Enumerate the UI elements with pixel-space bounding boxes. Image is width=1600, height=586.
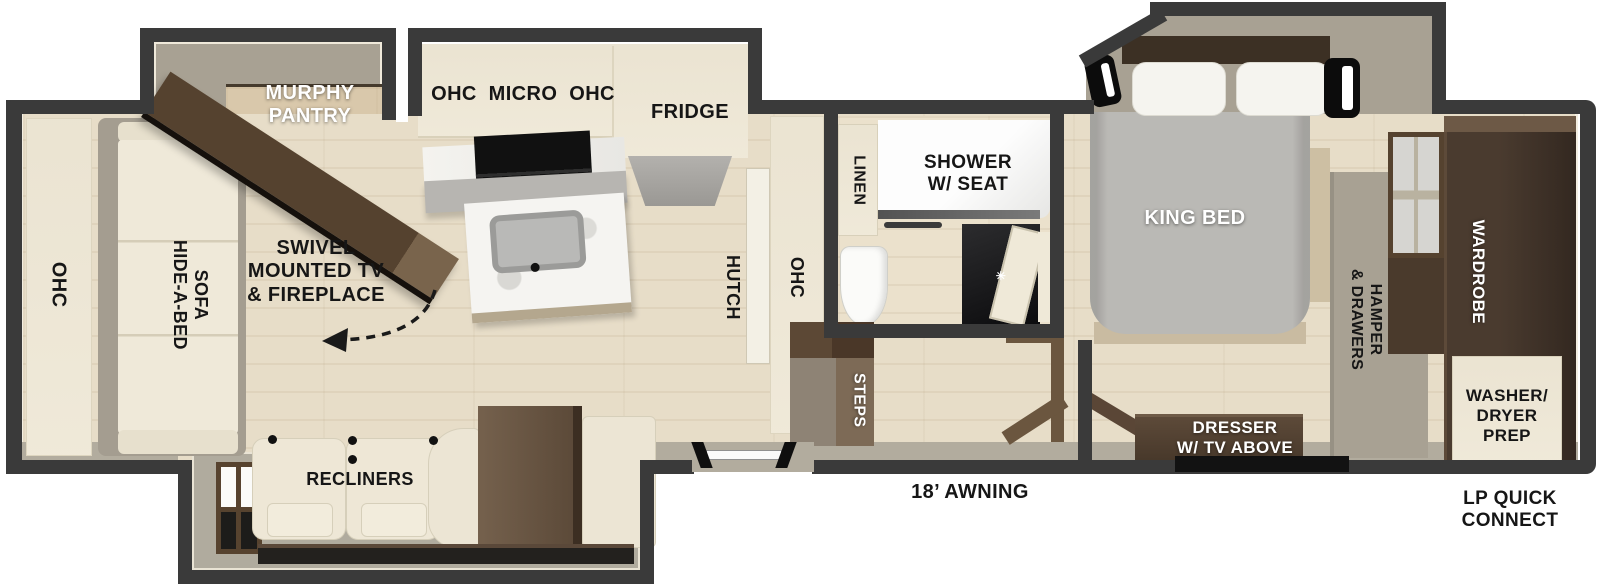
- toilet: [840, 246, 888, 326]
- wall-left-end: [6, 100, 22, 474]
- label-murphy-pantry: MURPHYPANTRY: [230, 82, 390, 128]
- wall-right-end: [1580, 100, 1596, 474]
- slide-floor-mat: [258, 544, 634, 564]
- wardrobe-top-shelf: [1444, 116, 1576, 132]
- bedroom-window-right: [1324, 58, 1360, 118]
- label-recliners: RECLINERS: [290, 466, 430, 492]
- wall-murphy-top: [140, 28, 396, 42]
- faucet: [530, 263, 540, 273]
- label-kitchen-ohc: OHC MICRO OHC: [408, 80, 638, 110]
- recliner-seat: [267, 503, 333, 537]
- wall-bottom-left: [6, 460, 192, 474]
- wall-bedroom-entry: [1078, 340, 1092, 460]
- window-pane: [1100, 63, 1115, 98]
- window-pane: [1342, 66, 1353, 110]
- vanity-fan-icon: ✳: [990, 266, 1012, 288]
- label-wardrobe: WARDROBE: [1448, 222, 1508, 322]
- entry-door-slab: [706, 450, 782, 460]
- label-steps: STEPS: [828, 355, 888, 445]
- dinette-table: [478, 406, 582, 552]
- wardrobe-window: [1388, 132, 1444, 258]
- label-linen: LINEN: [828, 135, 888, 225]
- cupholder-dot: [348, 436, 357, 445]
- cupholder-dot: [429, 436, 438, 445]
- label-hutch: HUTCH: [702, 240, 762, 335]
- wall-top-left: [6, 100, 154, 114]
- label-hutch-ohc: OHC: [767, 235, 827, 320]
- label-rear-ohc: OHC: [28, 240, 88, 330]
- slide-seam-gap: [396, 24, 408, 122]
- wall-slide-left: [178, 460, 192, 584]
- wall-bedslide-top: [1150, 2, 1446, 16]
- label-shower: SHOWERW/ SEAT: [880, 150, 1056, 198]
- dinette-bench-left: [428, 428, 480, 548]
- wall-bath-right: [1050, 114, 1064, 338]
- kitchen-island: [464, 193, 632, 324]
- sofa-armrest-bottom: [118, 430, 238, 454]
- cupholder-dot: [268, 435, 277, 444]
- pillow-right: [1236, 62, 1330, 116]
- headboard: [1122, 36, 1330, 64]
- label-dresser: DRESSERW/ TV ABOVE: [1150, 417, 1320, 459]
- wall-kitchen-top: [408, 28, 762, 42]
- wall-bedslide-right: [1432, 2, 1446, 114]
- cupholder-dot: [348, 455, 357, 464]
- stair-rail-right: [1051, 330, 1064, 442]
- wall-slide-right: [640, 460, 654, 584]
- recliner-seat: [361, 503, 427, 537]
- shower-handle: [884, 222, 942, 228]
- pillow-left: [1132, 62, 1226, 116]
- label-king-bed: KING BED: [1110, 204, 1280, 234]
- window-mullion: [236, 467, 241, 549]
- label-lp-quick-connect: LP QUICKCONNECT: [1430, 488, 1590, 532]
- wall-top-right: [1446, 100, 1580, 114]
- label-swivel-tv: SWIVELMOUNTED TV& FIREPLACE: [210, 236, 422, 308]
- label-hamper: HAMPER& DRAWERS: [1316, 250, 1416, 390]
- wall-bath-bottom: [824, 324, 1064, 338]
- label-awning: 18’ AWNING: [880, 480, 1060, 506]
- wall-slide-bottom: [178, 570, 654, 584]
- label-washer-dryer: WASHER/DRYERPREP: [1455, 385, 1559, 447]
- wall-top-middle: [748, 100, 1094, 114]
- floorplan: ✳: [0, 0, 1600, 586]
- shower-glass: [878, 210, 1040, 219]
- label-fridge: FRIDGE: [630, 98, 750, 128]
